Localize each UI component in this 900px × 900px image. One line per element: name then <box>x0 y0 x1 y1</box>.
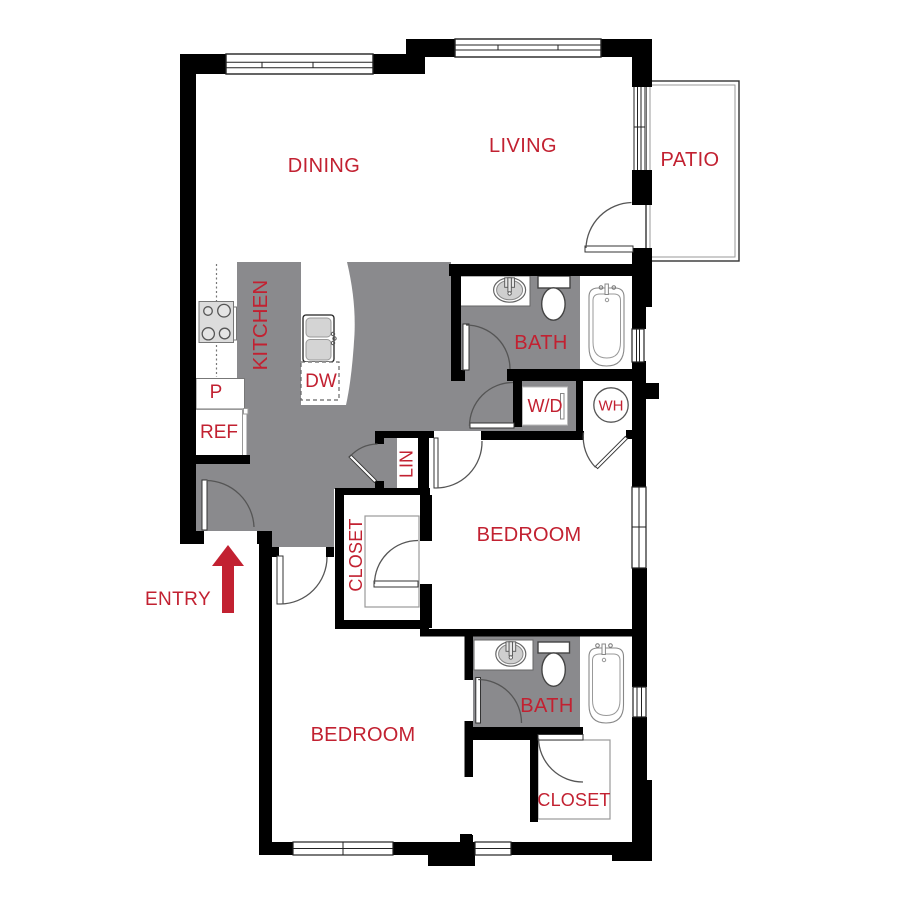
svg-text:BEDROOM: BEDROOM <box>311 724 416 746</box>
svg-text:LIN: LIN <box>397 450 417 478</box>
svg-text:BEDROOM: BEDROOM <box>477 524 582 546</box>
svg-text:P: P <box>210 382 223 403</box>
svg-text:W/D: W/D <box>528 396 563 416</box>
svg-text:KITCHEN: KITCHEN <box>249 280 272 371</box>
svg-text:BATH: BATH <box>520 695 573 717</box>
svg-text:CLOSET: CLOSET <box>346 518 366 591</box>
svg-text:ENTRY: ENTRY <box>145 589 211 610</box>
svg-text:REF: REF <box>200 422 238 443</box>
svg-text:BATH: BATH <box>514 332 567 354</box>
svg-text:DINING: DINING <box>288 155 360 177</box>
svg-text:CLOSET: CLOSET <box>537 790 610 810</box>
svg-text:WH: WH <box>599 398 624 415</box>
svg-text:DW: DW <box>305 371 337 392</box>
svg-text:PATIO: PATIO <box>660 149 719 171</box>
svg-text:LIVING: LIVING <box>489 135 557 157</box>
